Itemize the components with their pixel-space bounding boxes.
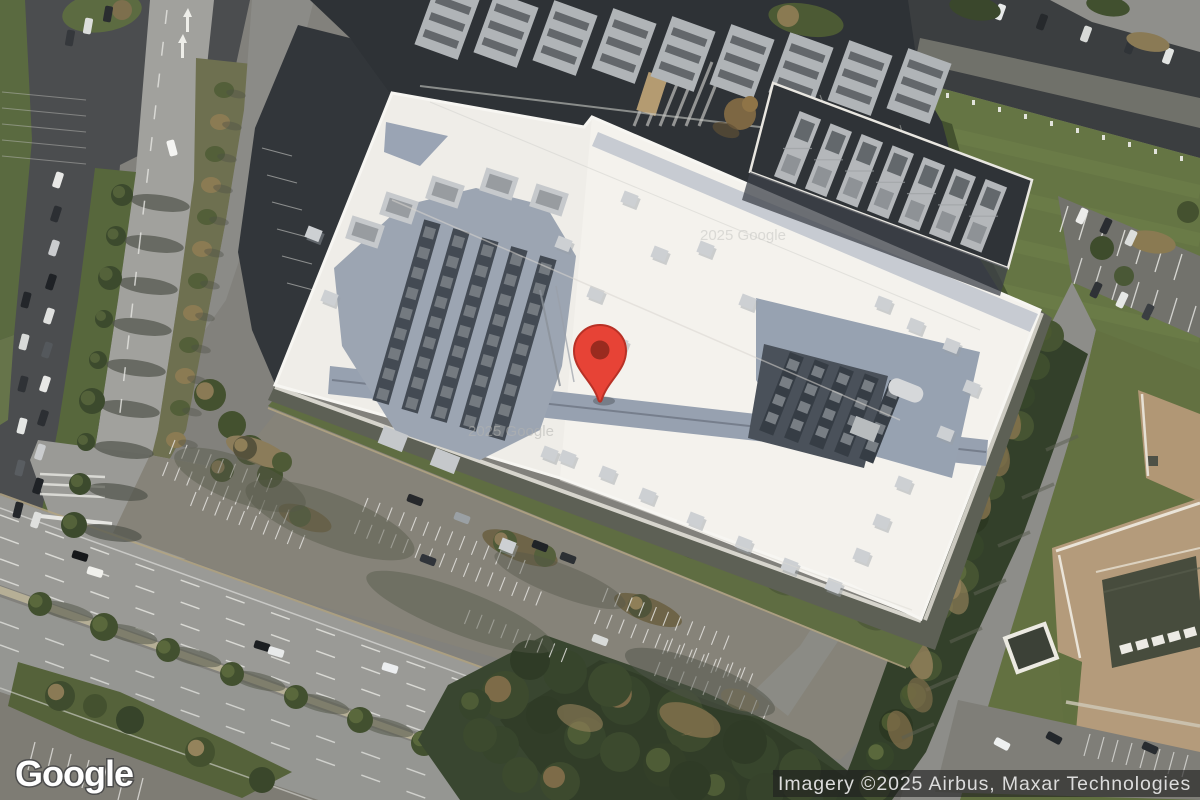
svg-text:Google: Google (15, 753, 133, 794)
svg-text:2025 Google: 2025 Google (700, 227, 786, 244)
svg-text:2025 Google: 2025 Google (468, 423, 554, 440)
svg-text:Imagery ©2025 Airbus, Maxar Te: Imagery ©2025 Airbus, Maxar Technologies (778, 773, 1191, 795)
